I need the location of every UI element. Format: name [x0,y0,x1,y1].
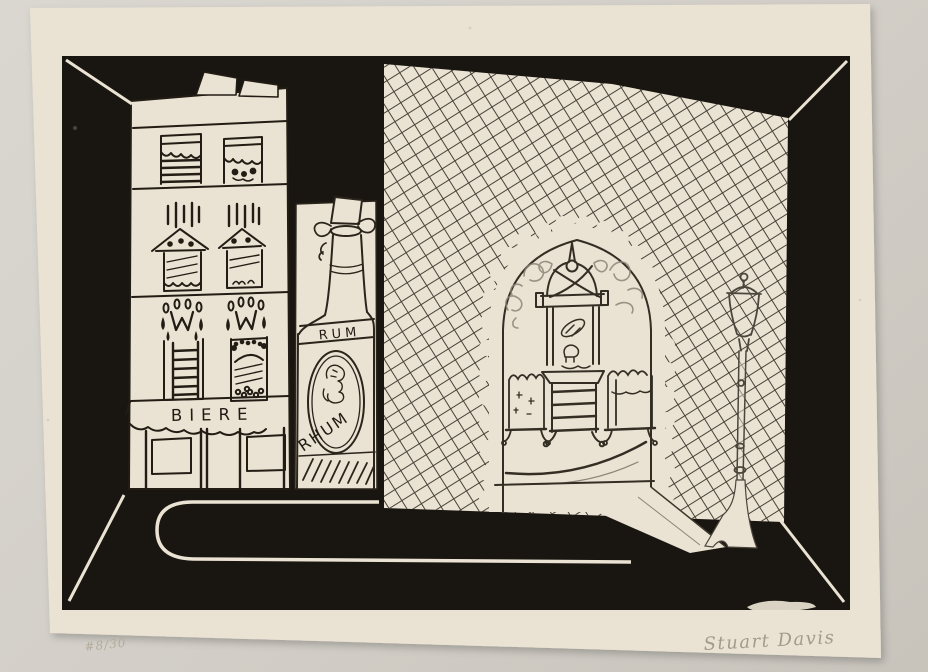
cork [331,197,362,224]
plate-speck [73,126,77,130]
artwork-photo: BIERE RUM RHUM [0,0,928,672]
edition-number: #8/30 [84,636,127,654]
building [126,72,290,489]
biere-sign-text: BIERE [171,405,255,425]
print-scene: BIERE RUM RHUM [0,0,928,672]
